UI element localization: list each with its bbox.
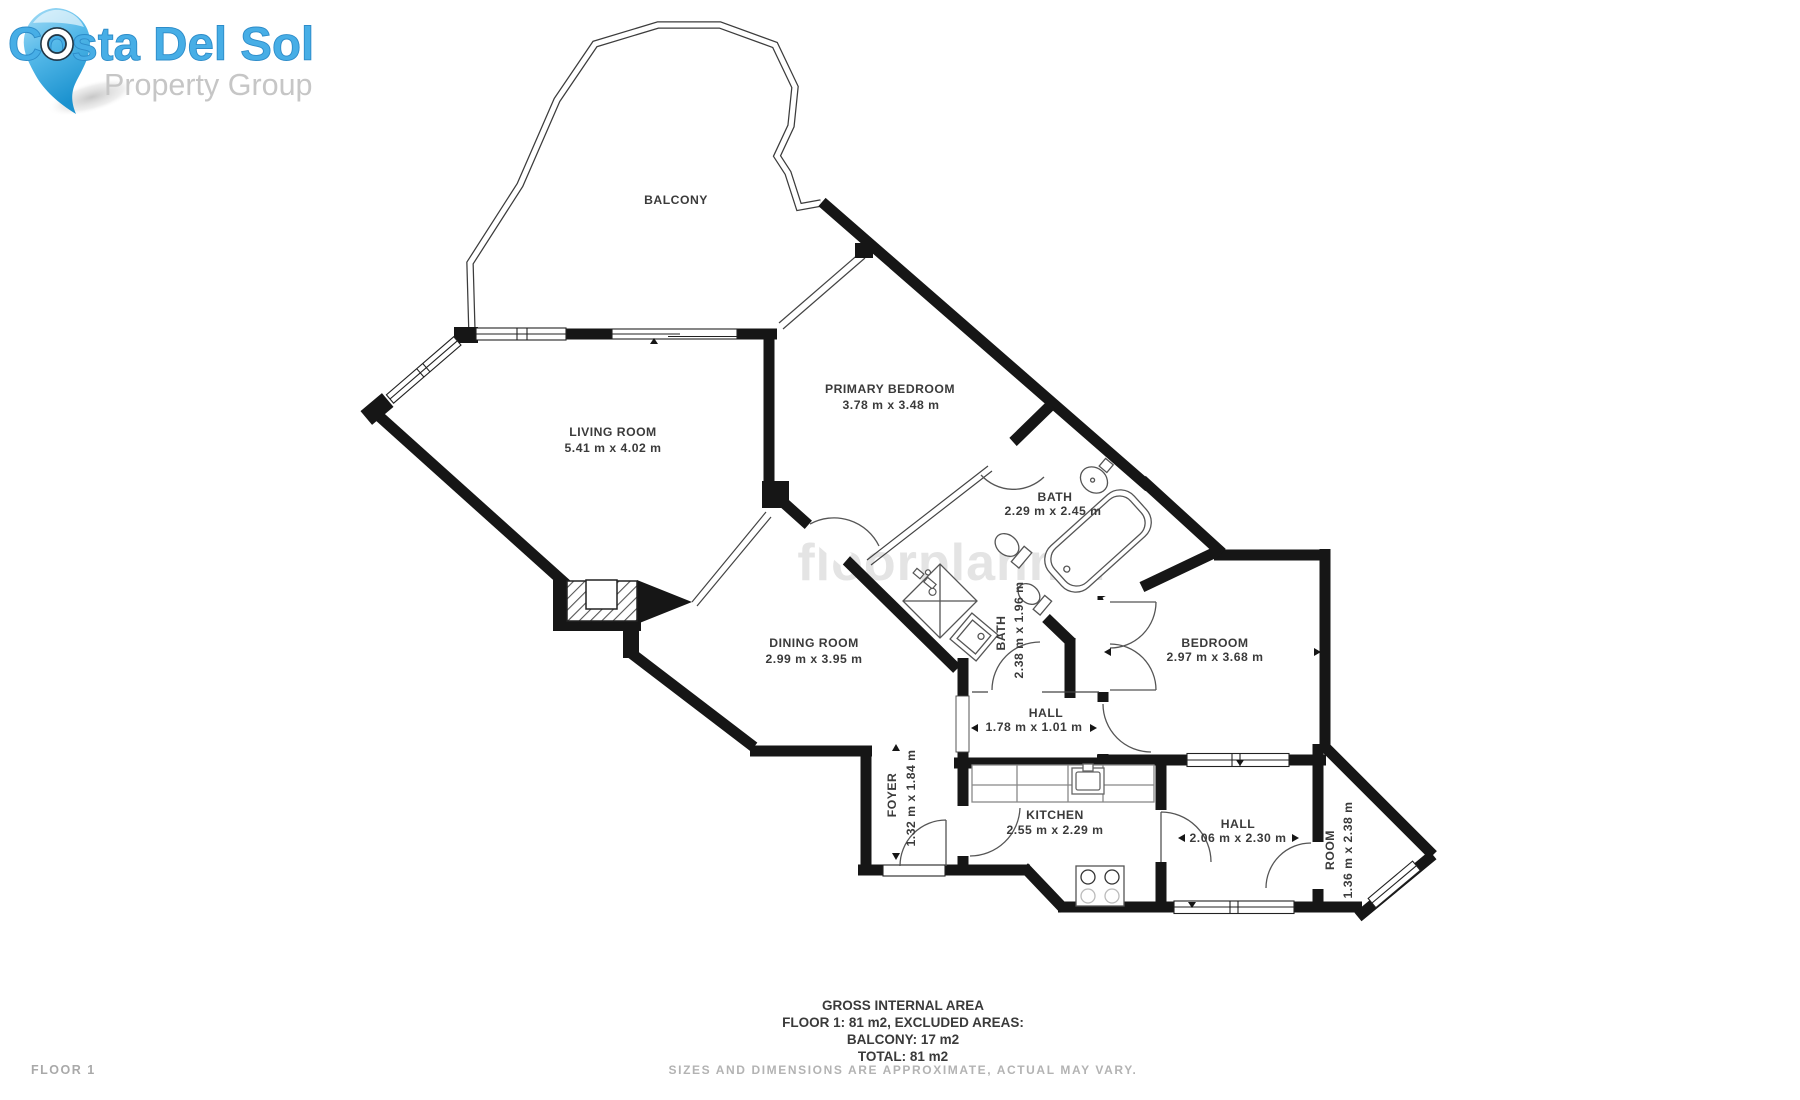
svg-text:FLOOR 1: 81 m2, EXCLUDED AREAS: FLOOR 1: 81 m2, EXCLUDED AREAS: xyxy=(782,1015,1024,1030)
svg-text:FLOOR 1: FLOOR 1 xyxy=(31,1063,96,1077)
svg-text:3.78 m x 3.48 m: 3.78 m x 3.48 m xyxy=(843,398,940,412)
svg-text:LIVING ROOM: LIVING ROOM xyxy=(569,425,656,439)
svg-text:2.06 m x 2.30 m: 2.06 m x 2.30 m xyxy=(1190,831,1287,845)
svg-text:2.99 m x 3.95 m: 2.99 m x 3.95 m xyxy=(766,652,863,666)
svg-text:BEDROOM: BEDROOM xyxy=(1181,636,1248,650)
svg-text:GROSS INTERNAL AREA: GROSS INTERNAL AREA xyxy=(822,998,984,1013)
svg-text:SIZES AND DIMENSIONS ARE APPRO: SIZES AND DIMENSIONS ARE APPROXIMATE, AC… xyxy=(669,1063,1138,1077)
svg-text:BATH: BATH xyxy=(1038,490,1073,504)
svg-text:BATH: BATH xyxy=(994,616,1008,651)
svg-text:BALCONY: BALCONY xyxy=(644,193,708,207)
svg-text:Property Group: Property Group xyxy=(104,68,313,102)
svg-text:1.78 m x 1.01 m: 1.78 m x 1.01 m xyxy=(986,720,1083,734)
svg-text:KITCHEN: KITCHEN xyxy=(1026,808,1084,822)
svg-text:HALL: HALL xyxy=(1029,706,1064,720)
svg-text:BALCONY: 17 m2: BALCONY: 17 m2 xyxy=(847,1032,959,1047)
svg-text:2.29 m x 2.45 m: 2.29 m x 2.45 m xyxy=(1005,504,1102,518)
svg-text:2.38 m x 1.96 m: 2.38 m x 1.96 m xyxy=(1012,582,1026,679)
svg-text:1.36 m x 2.38 m: 1.36 m x 2.38 m xyxy=(1341,802,1355,899)
svg-text:2.55 m x 2.29 m: 2.55 m x 2.29 m xyxy=(1007,823,1104,837)
svg-text:DINING ROOM: DINING ROOM xyxy=(769,636,858,650)
svg-text:2.97 m x 3.68 m: 2.97 m x 3.68 m xyxy=(1167,650,1264,664)
svg-text:ROOM: ROOM xyxy=(1323,830,1337,870)
svg-text:PRIMARY BEDROOM: PRIMARY BEDROOM xyxy=(825,382,955,396)
svg-text:1.32 m x 1.84 m: 1.32 m x 1.84 m xyxy=(904,750,918,847)
svg-text:Costa Del Sol: Costa Del Sol xyxy=(8,18,314,71)
svg-text:FOYER: FOYER xyxy=(885,773,899,817)
svg-text:HALL: HALL xyxy=(1221,817,1256,831)
svg-text:TOTAL: 81 m2: TOTAL: 81 m2 xyxy=(858,1049,948,1064)
svg-text:5.41 m x 4.02 m: 5.41 m x 4.02 m xyxy=(565,441,662,455)
